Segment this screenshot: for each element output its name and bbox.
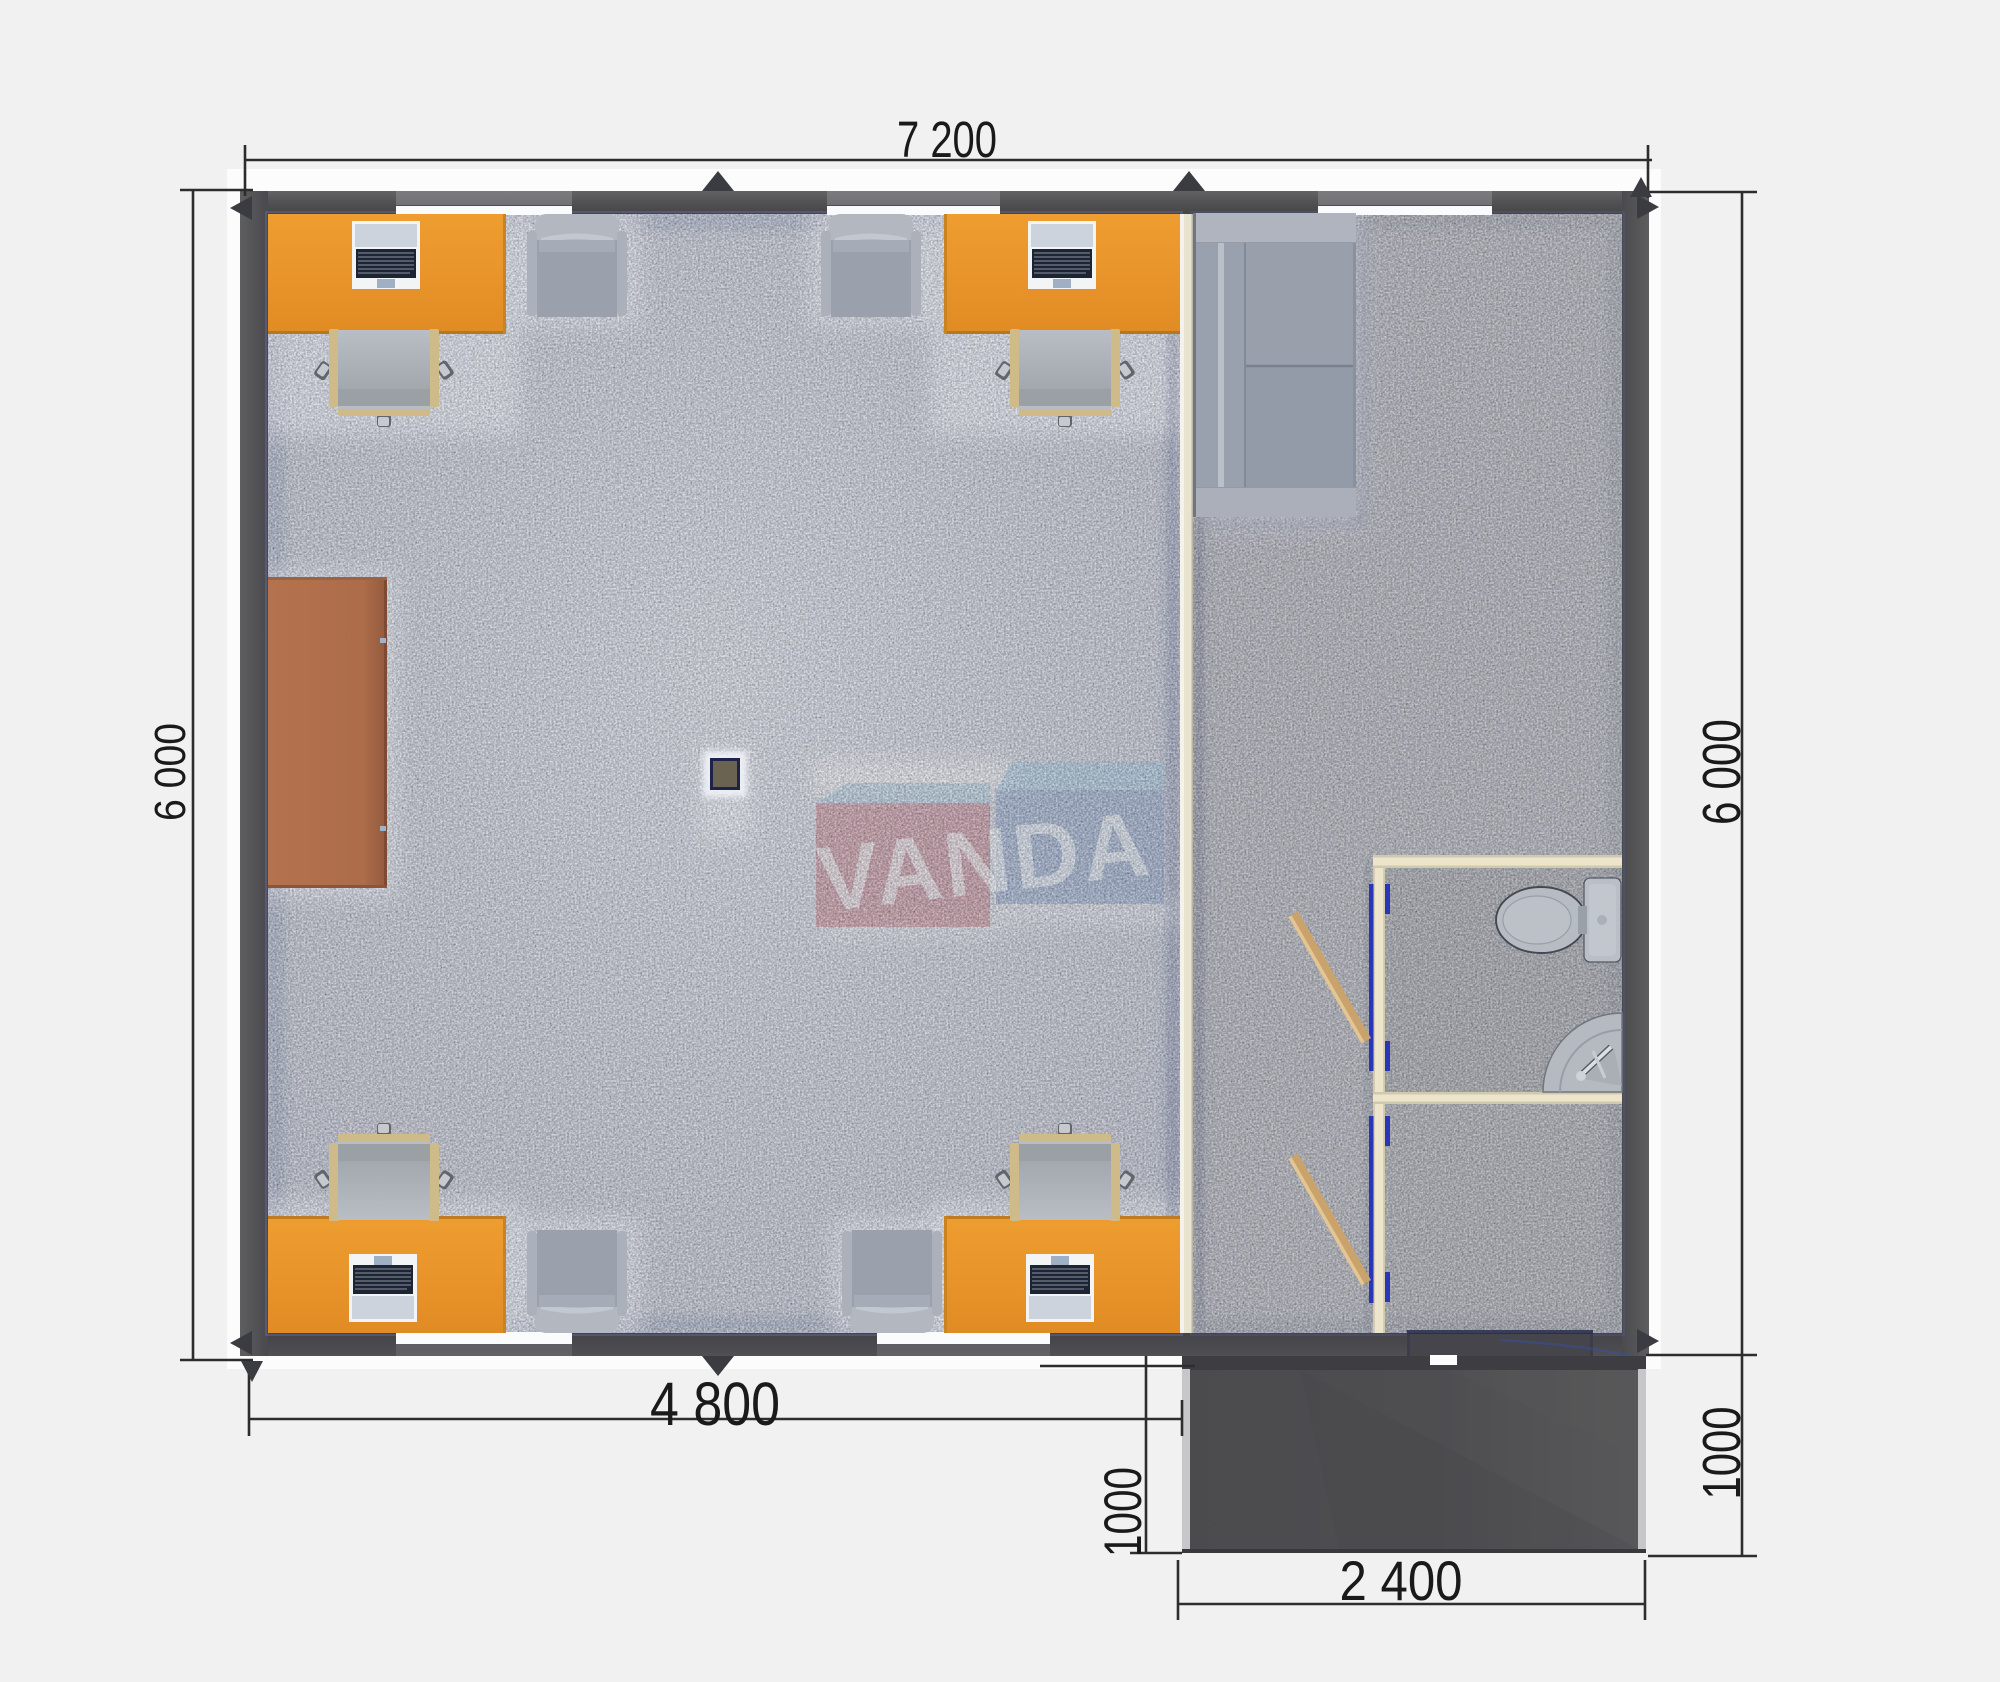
svg-text:4 800: 4 800	[650, 1370, 780, 1438]
svg-text:1000: 1000	[1692, 1407, 1752, 1500]
svg-text:7 200: 7 200	[897, 111, 997, 168]
svg-text:1000: 1000	[1094, 1467, 1153, 1557]
svg-text:6 000: 6 000	[1692, 719, 1752, 825]
svg-text:6 000: 6 000	[146, 723, 195, 821]
svg-text:2 400: 2 400	[1340, 1549, 1463, 1612]
